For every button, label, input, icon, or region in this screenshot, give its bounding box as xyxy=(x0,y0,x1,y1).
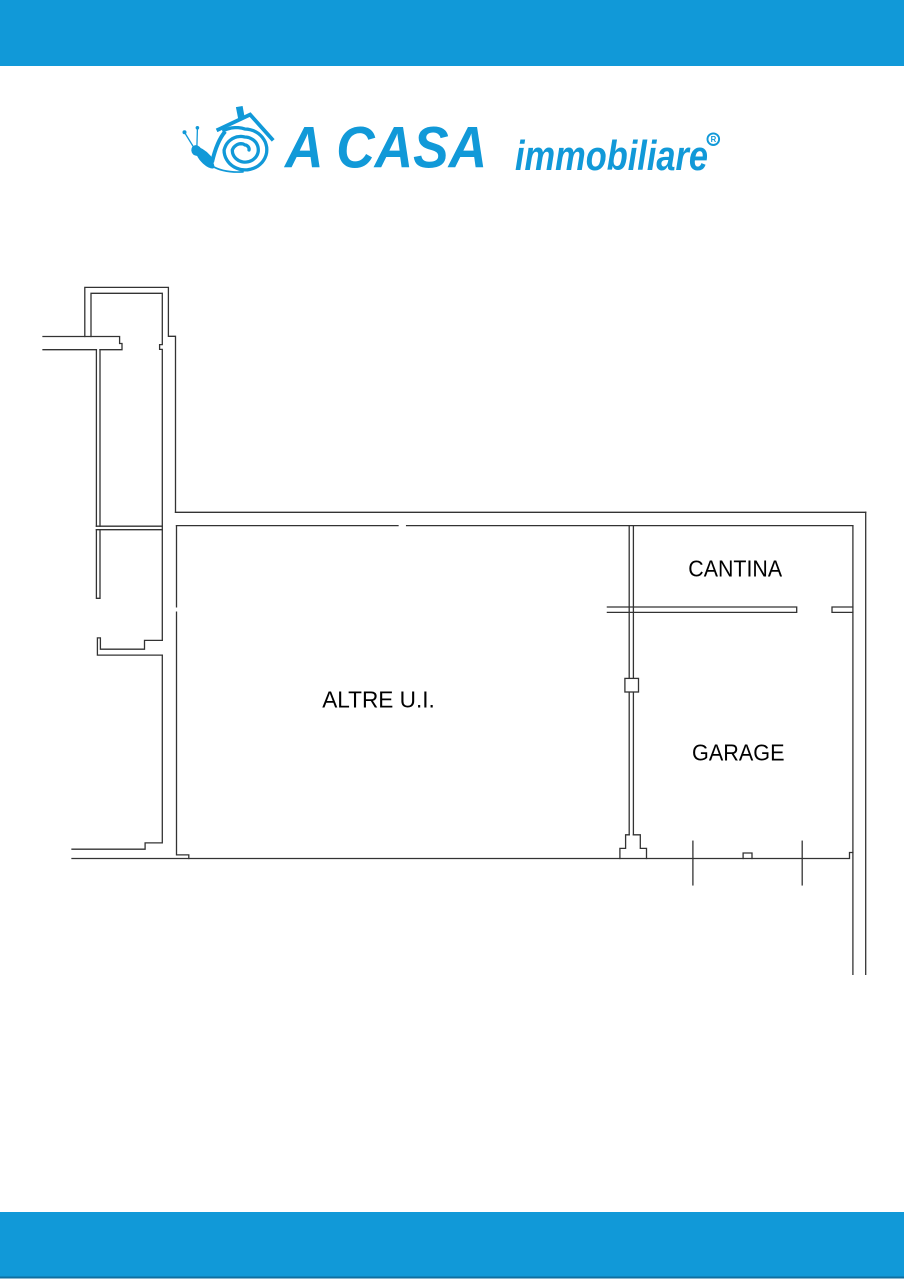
svg-text:R: R xyxy=(711,135,717,144)
svg-text:CANTINA: CANTINA xyxy=(688,555,782,581)
svg-text:GARAGE: GARAGE xyxy=(692,740,785,766)
svg-text:ALTRE U.I.: ALTRE U.I. xyxy=(322,687,435,713)
svg-text:immobiliare: immobiliare xyxy=(515,132,708,179)
svg-text:A CASA: A CASA xyxy=(283,116,487,181)
